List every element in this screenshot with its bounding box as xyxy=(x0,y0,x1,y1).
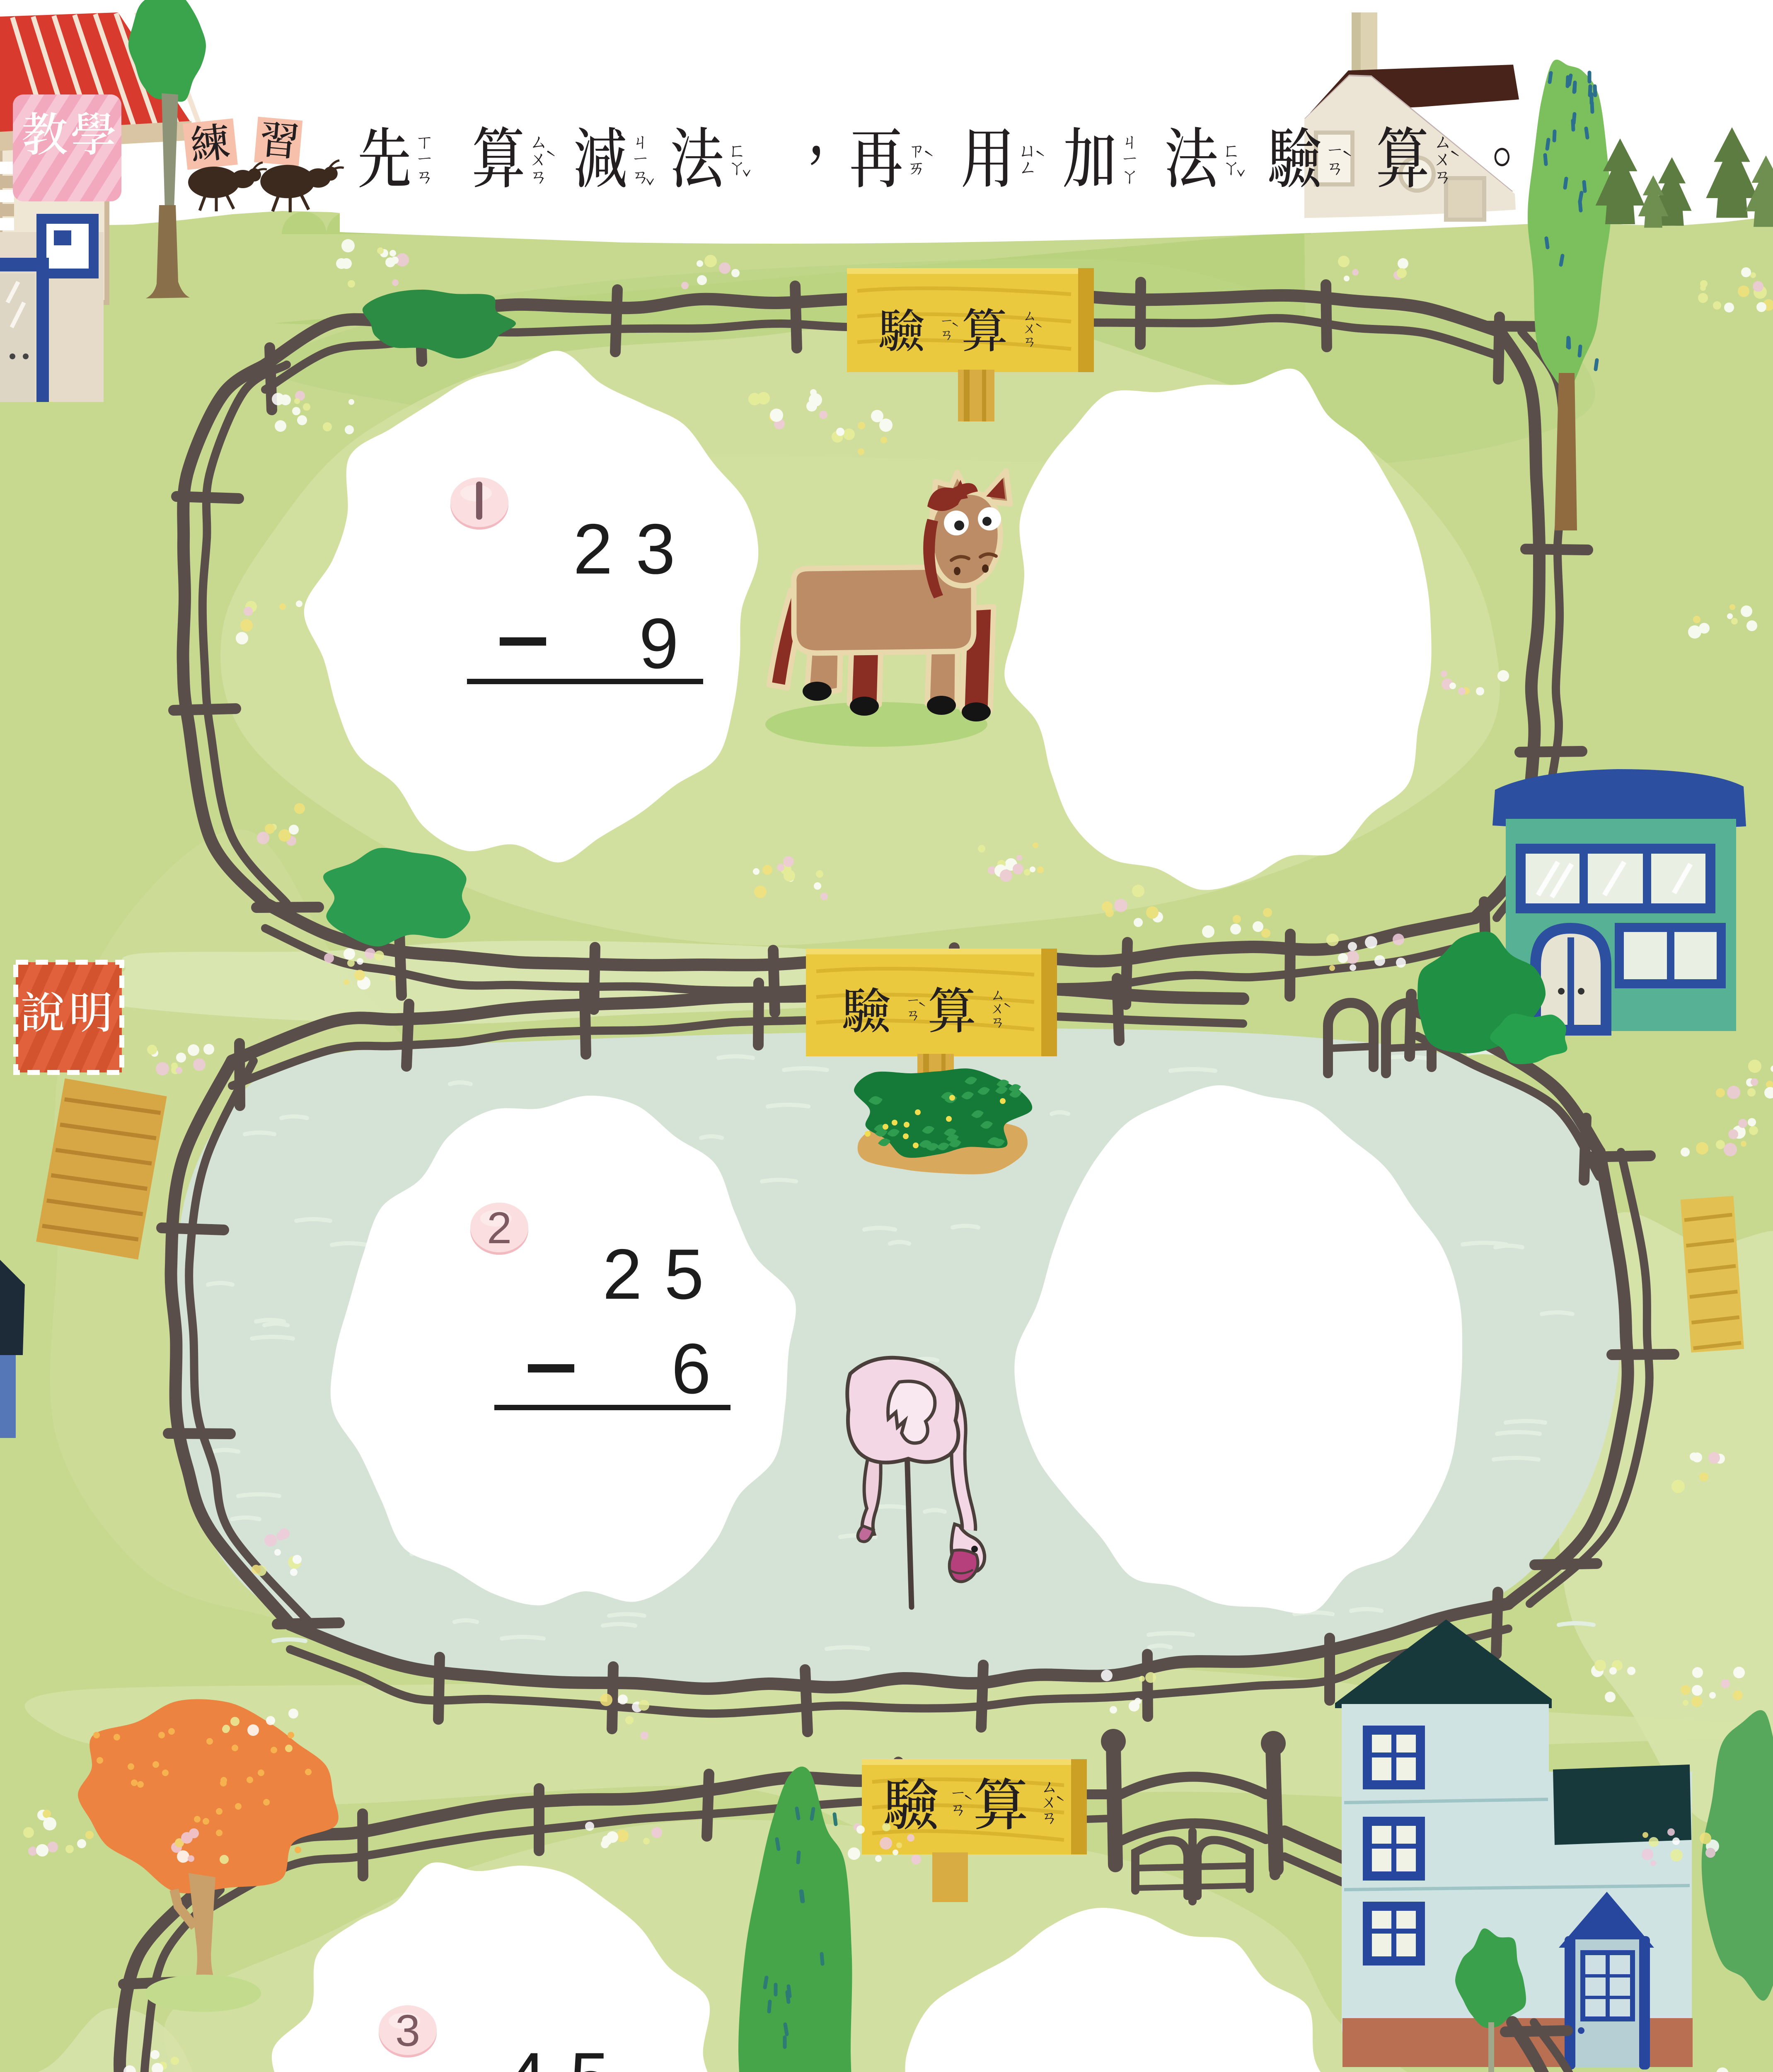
svg-text:3: 3 xyxy=(636,509,675,589)
svg-text:2: 2 xyxy=(487,1203,512,1253)
svg-text:2: 2 xyxy=(573,509,613,589)
svg-text:6: 6 xyxy=(671,1329,711,1409)
svg-text:4: 4 xyxy=(507,2038,547,2072)
svg-text:2: 2 xyxy=(602,1234,642,1314)
svg-text:9: 9 xyxy=(639,604,679,683)
svg-text:3: 3 xyxy=(395,2005,420,2055)
svg-text:5: 5 xyxy=(664,1234,704,1314)
svg-text:5: 5 xyxy=(570,2038,610,2072)
